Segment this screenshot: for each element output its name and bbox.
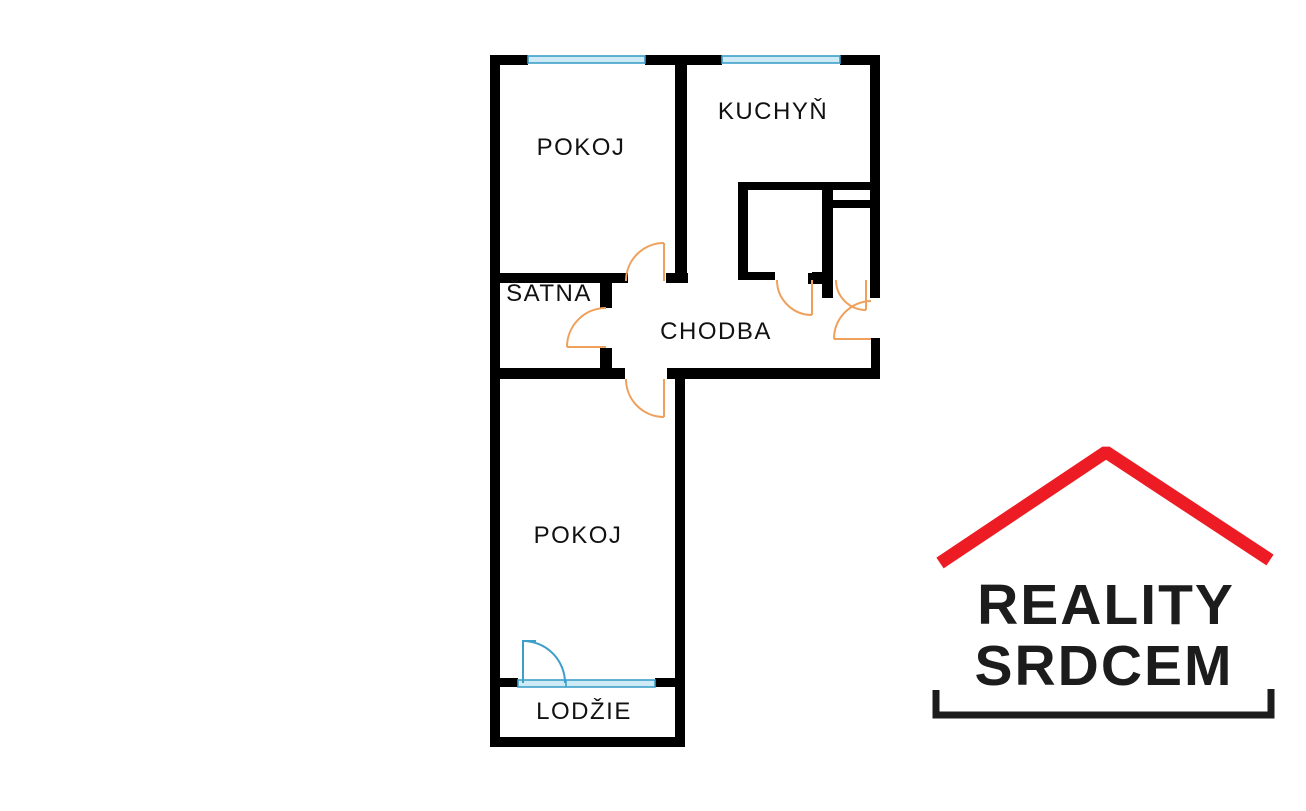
logo-text-line1: REALITY [977,572,1235,638]
window-kuchyn [722,56,840,63]
wall-mid-corner [666,273,688,283]
floorplan-page: POKOJ KUCHYŇ ŠATNA CHODBA POKOJ LODŽIE R… [0,0,1306,811]
wall-lodzie-right [655,678,685,687]
wall-strip-right [675,379,685,747]
room-label-kuchyn: KUCHYŇ [718,98,828,126]
wall-chodba-bot-right [667,368,880,379]
door-lodzie-arc [523,641,565,683]
logo-roof-icon [940,452,1270,563]
room-label-pokoj-bottom: POKOJ [534,522,623,550]
logo-text-line2: SRDCEM [974,633,1233,699]
wall-pokoj-kuchyn [675,55,687,283]
room-label-pokoj-top: POKOJ [537,134,626,162]
door-lodzie-leaf [523,641,536,683]
wall-bath-left [738,182,748,280]
wall-bath-top [738,182,870,190]
window-lodzie-glazing [518,680,655,687]
wall-left [490,55,500,747]
wall-bath-bot-left [748,272,775,280]
wall-right-upper [870,55,880,298]
room-label-lodzie: LODŽIE [536,698,632,726]
wall-wc-duct [833,200,870,208]
wall-satna-right-top [600,282,612,308]
door-pokoj-top-arc [626,243,664,281]
wall-lodzie-left [490,678,518,687]
wall-bath-wc-divider [822,182,833,298]
wall-door-jamb [808,273,822,284]
door-satna-arc [567,308,606,347]
door-bathroom-arc [777,280,812,315]
balcony-door [523,641,565,683]
wall-bottom [490,737,685,747]
room-label-satna: ŠATNA [506,280,592,308]
door-pokoj-bottom-arc [626,379,664,417]
wall-chodba-bot-left [490,368,625,379]
room-label-chodba: CHODBA [660,318,772,346]
window-pokoj-top [528,56,645,63]
door-wc-arc [836,280,866,310]
